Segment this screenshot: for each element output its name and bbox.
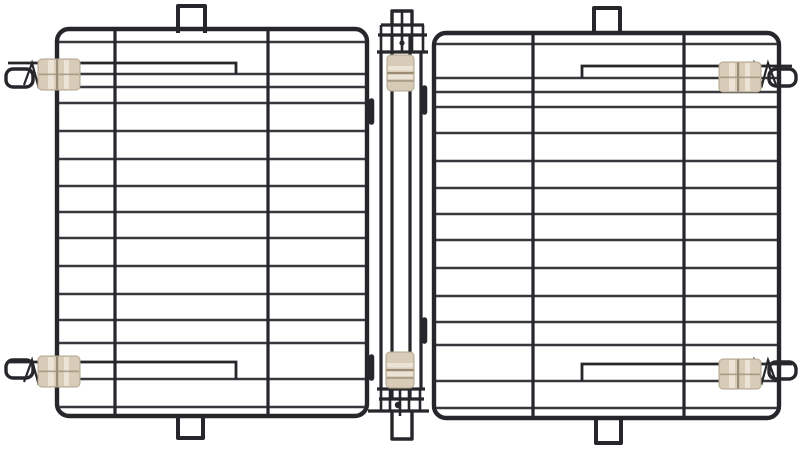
latch-clip-right-top xyxy=(719,62,761,92)
latch-clip-center-bottom xyxy=(386,352,414,388)
hinge-strip-top-comb xyxy=(377,12,428,52)
latch-clip-left-bottom xyxy=(38,356,80,387)
hinge-strip-bottom-comb xyxy=(368,389,429,416)
left-panel-vertical-wires xyxy=(115,31,268,414)
center-hinge-strip xyxy=(368,11,429,439)
left-panel xyxy=(6,6,372,438)
left-panel-horizontal-wires xyxy=(59,42,365,407)
right-panel xyxy=(425,8,797,443)
right-panel-horizontal-wires xyxy=(436,44,777,408)
crate-panels-image xyxy=(0,0,800,449)
latch-clip-left-top xyxy=(38,59,80,90)
latch-clip-center-top xyxy=(387,55,414,91)
hinge-strip-bottom-tab xyxy=(392,412,412,439)
product-photo xyxy=(0,0,800,449)
latch-clip-right-bottom xyxy=(719,359,761,389)
